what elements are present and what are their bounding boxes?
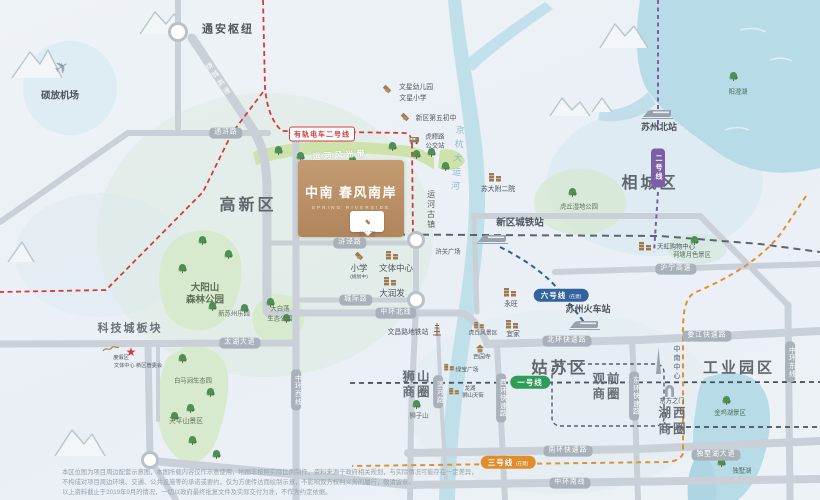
poi-culture-sports-center: 文体中心 [379,264,413,274]
roadname-zhonghuan-dong: 中环东线 [785,341,795,382]
tower-icon [654,347,663,374]
bus-icon [409,136,420,145]
tree-icon [206,388,215,398]
tree-icon [224,250,233,260]
label-dayangshan: 森林公园 [186,296,224,307]
tree-icon [441,162,450,172]
tree-icon [198,236,207,246]
roadname-huning: 沪宁高速 [655,264,696,275]
label-suzhou-amusement: 新苏州乐园 [218,310,249,317]
label-yangchenghu: 阳澄湖 [729,88,748,95]
roadname-tonghu: 通浒路 [209,128,242,139]
poi-no5-middle-school: 新区第五初中 [416,115,457,123]
building-icon [639,241,651,251]
disclaimer-line: 以上资料截止于2019年9月的情况，一切以政府最终批复文件及实际交付为准，不作为… [62,488,567,498]
area-shishan: 商圈 [402,385,431,399]
tree-icon [178,264,187,274]
roadname-taihu: 太湖大道 [219,338,260,349]
graduation-hat-icon [380,84,393,94]
train-icon [476,233,510,245]
poi-wenxing-kindergarten: 文星幼儿园 [399,84,433,92]
badge-metro-line2: 二号线 [651,149,665,188]
train-icon [568,319,602,331]
roadname-chengji: 城际路 [339,295,372,306]
station-wenchanglu: 文昌路地铁站 [388,329,429,337]
tree-icon [412,150,421,160]
graduation-hat-icon [363,219,371,225]
label-shizishan: 狮子山 [410,412,429,419]
poi-longhu-tianjie: 龙湖 [465,386,476,392]
roadname-hujing: 浒泾路 [333,238,366,249]
label-huqiu-wetland: 虎丘湿地公园 [560,203,598,210]
building-icon [386,250,398,260]
area-shishan: 狮山 [402,370,431,384]
building-icon [384,276,396,286]
plate-kejicheng: 科技城板块 [98,323,163,336]
building-icon [449,387,459,395]
district-gaoxin: 高新区 [219,197,276,215]
pagoda-icon [432,323,442,336]
temple-icon [475,344,485,353]
hospital-icon [489,172,501,182]
disclaimer-line: 不构成对项目周边环境、交通、公共设施等的承诺或要约，仅为方便传达而绘制示意，不影… [62,478,567,488]
roadname-loujiang: 娄江快速路 [683,331,732,342]
poi-huqiu-scenic: 虎丘风景区 [469,331,498,338]
poi-suda-hospital: 苏大附二院 [481,186,515,194]
roadname-nanhuan: 南环快速路 [544,446,593,457]
tree-icon [178,354,187,364]
label-hetang: 荷塘月色景区 [673,251,711,258]
poi-rtmart: 大润发 [379,289,405,299]
label-baimajian: 白马涧生态园 [174,377,212,384]
art-center-sketch-icon [102,344,120,353]
poi-aeon: 永旺 [504,301,518,309]
roadname-zhonghuan-bei: 中环北线 [375,308,416,319]
label-dabaidang: 生态公园 [267,315,292,322]
roadname-xihuan: 西环快速路 [496,374,506,423]
roadname-binhe: 滨河路 [433,375,443,408]
station-tongan-hub: 通安枢纽 [202,24,254,37]
area-huxi: 湖西 [658,406,687,420]
badge-metro-line6: 六号线 (在建) [534,289,589,302]
badge-metro-line3: 三号线 (在建) [481,456,536,469]
busstop-huliu: 虎疁路 [426,133,445,140]
location-map: 中南 春风南岸 SPRING RIVERSIDE 幼儿园 高新区 相城区 姑苏区… [0,0,820,500]
badge-tram-line2: 有轨电车二号线 [289,127,355,142]
tree-icon [188,436,197,446]
badge-metro-line1: 一号线 [510,376,550,389]
train-icon [641,108,675,120]
gate-of-orient-icon [664,384,675,397]
poi-lvbao-square: 绿宝广场 [455,368,478,375]
poi-xiyuan-temple: 西园寺 [473,355,490,362]
stream-northeast [463,2,553,71]
project-name: 中南 春风南岸 [298,182,404,201]
area-guanqian: 商圈 [592,387,621,401]
roadname-zhonghuan-xi: 中环西线 [291,369,301,410]
label-dayangshan: 大阳山 [191,284,220,295]
area-guanqian: 观前 [592,372,621,386]
building-icon [506,319,518,329]
tree-icon [568,188,577,198]
airport-tint [23,41,117,135]
road-zhonghuan-dong [788,305,790,500]
poi-zhongnan-center: 中南中心 [672,345,680,381]
park-huqiu-wetland [534,169,626,235]
tree-icon [186,404,195,414]
kindergarten-badge: 幼儿园 [350,211,384,232]
poi-longhu-tianjie: 狮山天街 [462,393,484,399]
building-icon [444,363,454,371]
roadname-dushuhu-dadao: 独墅湖大道 [692,450,741,461]
poi-wenxing-primary: 文星小学 [399,95,426,103]
station-suzhou-north: 苏州北站 [641,122,677,132]
poi-ikea: 宜家 [506,331,520,339]
poi-dujiaqu: 度假区 [113,356,129,362]
tree-icon [412,400,421,410]
project-subtitle: SPRING RIVERSIDE [298,205,404,210]
busstop-huliu: 公交站 [426,142,445,149]
roadname-beihuan: 北环快速路 [543,336,592,347]
station-xinqu-chengtie: 新区城铁站 [496,219,544,230]
label-jinjihu: 金鸡湖景区 [714,409,745,416]
poi-dongfangzhimen: 东方之门 [659,397,684,404]
graduation-hat-icon [398,112,411,122]
poi-wenti-guanwei: 文体中心 新区管委会 [114,364,162,370]
graduation-hat-icon [352,251,365,261]
building-icon [474,321,484,329]
roadname-donghuan: 东环快速路 [629,372,639,421]
disclaimer-line: 本区位图为项目周边配套示意图，本图所载内容仅作示意使用，地图非按照实际比例制作，… [62,468,567,478]
label-dushuhu: 独墅湖 [733,467,752,474]
poi-huguan-square: 浒关广场 [435,248,460,255]
tree-icon [274,146,283,156]
poi-primary-school: 小学 [350,264,367,274]
tree-icon [722,396,731,406]
tree-icon [212,450,221,460]
tree-icon [729,72,738,82]
poi-tianhong-mall: 天虹购物中心 [657,243,695,250]
tree-icon [388,142,397,152]
label-gu-town: 运河古镇 [426,190,435,230]
label-tianpingshan: 天平山景区 [169,418,203,426]
district-gongyeyuanqu: 工业园区 [703,359,775,376]
poi-primary-school-note: (规划中) [350,275,368,281]
label-dabaidang: 大白荡 [271,305,290,312]
disclaimer-text: 本区位图为项目周边配套示意图，本图所载内容仅作示意使用，地图非按照实际比例制作，… [62,468,567,497]
building-icon [504,287,516,297]
map-base-svg [0,0,820,500]
district-xiangcheng: 相城区 [621,175,678,193]
station-suzhou-railway: 苏州火车站 [565,304,610,314]
roadname-zhonghuan-nan: 中环南线 [549,478,590,489]
area-huxi: 商圈 [658,422,687,436]
poi-airport: 硕放机场 [41,92,79,103]
